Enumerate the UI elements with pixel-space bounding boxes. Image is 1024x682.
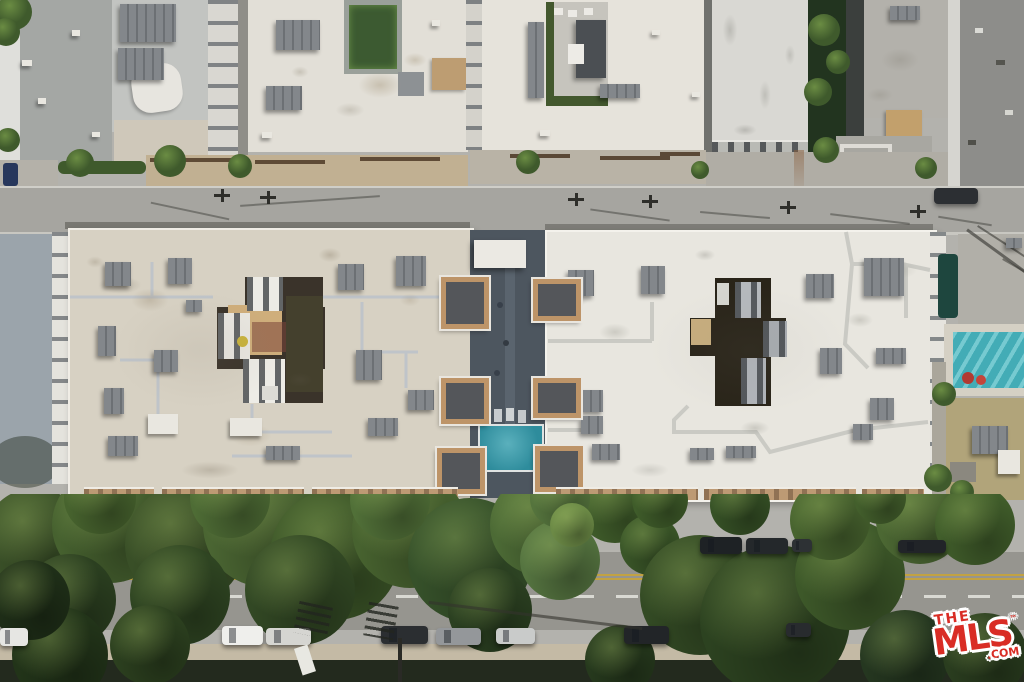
power-pole <box>917 205 920 218</box>
wire-shadow <box>830 213 910 225</box>
power-pole <box>221 189 224 202</box>
power-pole <box>787 201 790 214</box>
aerial-photo: THE MLS™ .COM <box>0 0 1024 682</box>
pole-ladder-shadow <box>293 601 333 639</box>
power-pole <box>575 193 578 206</box>
wire-shadow <box>938 216 992 226</box>
mls-watermark: THE MLS™ .COM <box>929 602 1024 682</box>
mls-watermark-tm: ™ <box>1009 614 1016 624</box>
utility-pole <box>398 638 402 682</box>
wire-shadow <box>429 601 643 630</box>
wire-shadow <box>590 208 669 221</box>
canopy-band <box>0 494 1024 682</box>
bottom-shadows-layer <box>0 494 1024 682</box>
pole-ladder-shadow <box>363 602 398 641</box>
power-pole <box>649 195 652 208</box>
wire-shadow <box>151 202 230 221</box>
wire-shadow <box>700 211 770 219</box>
